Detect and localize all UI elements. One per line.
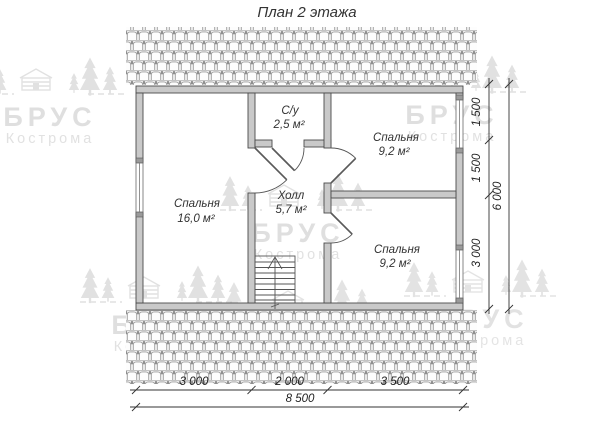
wall-outer-bottom (136, 303, 463, 310)
room-area: 16,0 м² (177, 213, 215, 225)
window-left (136, 158, 143, 217)
dim-right-1: 1 500 (471, 97, 483, 126)
dim-bottom-1: 3 000 (180, 376, 209, 388)
window-right-top (456, 95, 463, 153)
room-area: 9,2 м² (379, 146, 411, 158)
door-bathroom (272, 148, 304, 171)
dim-bottom-3: 3 500 (381, 376, 410, 388)
dim-right-total: 6 000 (492, 181, 504, 210)
watermark-logo (0, 58, 128, 148)
window-right-bottom (456, 245, 463, 303)
wall-bedroom-hall-upper (248, 93, 255, 148)
wall-outer-left-lower (136, 212, 143, 303)
dim-bottom-2: 2 000 (274, 376, 304, 388)
staircase (255, 256, 295, 309)
room-area: 5,7 м² (276, 204, 308, 216)
room-label-bedroom-left: Спальня 16,0 м² (174, 198, 220, 225)
wall-bedroom-hall-lower (248, 193, 255, 303)
page-title: План 2 этажа (257, 4, 356, 21)
roof-hatch-top (126, 27, 477, 85)
wall-bathroom-bottom-left (255, 140, 272, 147)
dim-right-2: 1 500 (471, 153, 483, 182)
room-name: Спальня (174, 198, 220, 210)
wall-hall-right-middle (324, 183, 331, 213)
room-name: Спальня (374, 244, 420, 256)
dim-bottom-total: 8 500 (286, 393, 315, 405)
wall-outer-right-b (456, 148, 463, 250)
room-area: 9,2 м² (380, 258, 412, 270)
room-area: 2,5 м² (273, 119, 306, 131)
wall-outer-top (136, 86, 463, 93)
floor-plan-page: БРУС Кострома План 2 этажа (0, 0, 600, 424)
room-name: Холл (277, 190, 305, 202)
wall-hall-right-lower (324, 243, 331, 303)
watermark-logo (220, 174, 376, 264)
wall-bedrooms-divider (331, 191, 456, 198)
roof-hatch-bottom (126, 310, 477, 384)
floor-plan-drawing: БРУС Кострома План 2 этажа (0, 0, 600, 424)
room-label-bedroom-top-right: Спальня 9,2 м² (373, 132, 419, 158)
room-name: С/у (281, 105, 300, 117)
room-label-bathroom: С/у 2,5 м² (273, 105, 306, 131)
door-bedroom-top-right (331, 148, 356, 183)
room-name: Спальня (373, 132, 419, 144)
wall-outer-left-upper (136, 93, 143, 163)
wall-hall-right-upper (324, 93, 331, 148)
dim-right-3: 3 000 (471, 238, 483, 267)
room-label-hall: Холл 5,7 м² (276, 190, 308, 216)
